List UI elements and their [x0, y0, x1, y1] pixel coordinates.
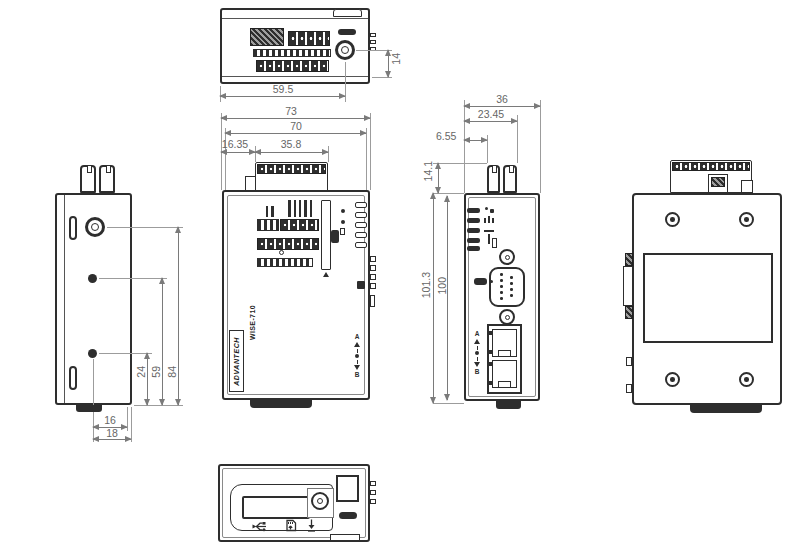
side-rib — [370, 499, 376, 504]
usb-icon — [251, 521, 268, 532]
sim-slot-opening — [242, 496, 310, 519]
sd-card-opening — [336, 475, 359, 502]
bottom-lip — [330, 534, 360, 541]
captive-screw-center — [317, 498, 323, 504]
mechanical-drawing-canvas: 59.5 14 73 70 16.35 35.8 — [0, 0, 800, 548]
sd-card-icon — [284, 519, 297, 532]
slot-opening — [339, 512, 357, 519]
side-rib — [370, 481, 376, 486]
bottom-view — [0, 0, 800, 548]
power-arrow-icon — [306, 519, 317, 532]
side-rib — [370, 490, 376, 495]
